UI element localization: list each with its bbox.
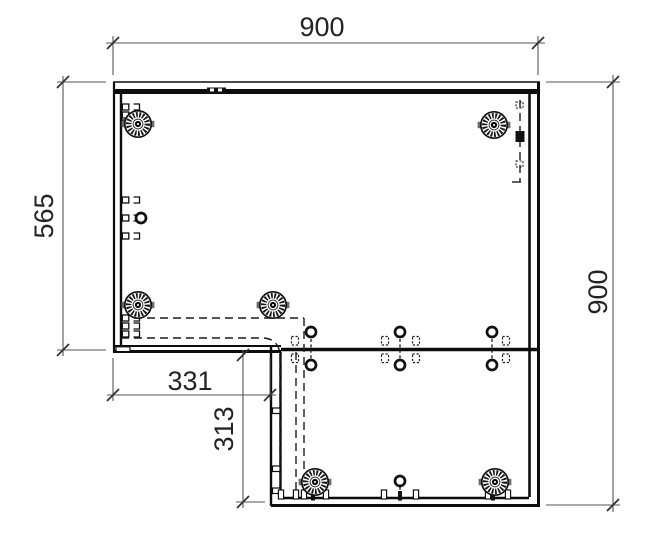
dimension-label: 565 <box>29 193 59 238</box>
dowel-fitting <box>487 327 497 337</box>
edge-connector-plate <box>207 88 226 95</box>
foot-mark <box>278 490 283 499</box>
dowel-fitting <box>395 327 405 337</box>
hidden-fitting-block <box>516 131 525 142</box>
dimension-label: 313 <box>209 406 239 451</box>
foot-mark <box>413 490 418 499</box>
dowel-fitting <box>306 360 316 370</box>
panel-drawing: 900565331313900 <box>0 0 657 545</box>
clip-mark <box>273 466 281 472</box>
dowel-fitting <box>487 360 497 370</box>
foot-mark <box>381 490 386 499</box>
corner-cap-mark <box>116 347 130 352</box>
foot-mark <box>505 490 510 499</box>
technical-drawing-canvas: 900565331313900 <box>0 0 657 545</box>
dowel-fitting <box>136 213 146 223</box>
foot-mark <box>293 490 298 499</box>
dimension-label: 331 <box>167 366 212 396</box>
dowel-fitting <box>306 327 316 337</box>
dimension-label: 900 <box>299 12 344 42</box>
dowel-fitting <box>395 360 405 370</box>
dimension-label: 900 <box>583 269 613 314</box>
clip-mark <box>273 408 281 414</box>
dowel-fitting <box>395 476 405 486</box>
